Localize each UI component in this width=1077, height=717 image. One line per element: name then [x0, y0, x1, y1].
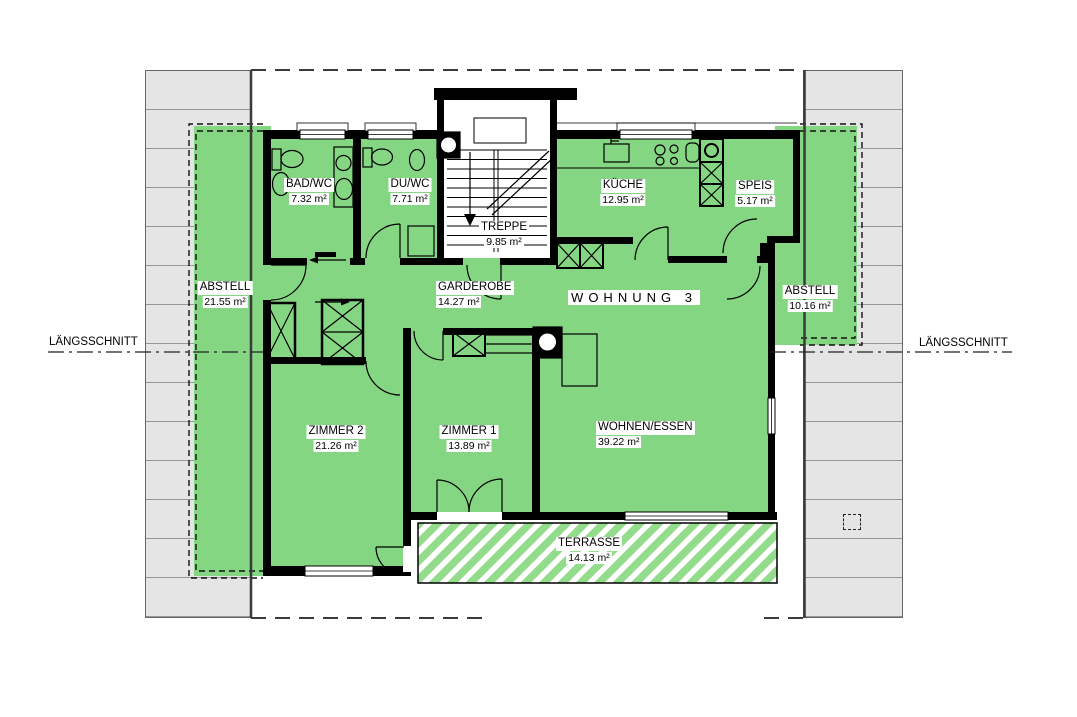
terrace-door-opening: [437, 512, 502, 520]
floorplan-page: BAD/WC7.32 m² DU/WC7.71 m² TREPPE9.85 m²…: [0, 0, 1077, 717]
room-label-kueche: KÜCHE12.95 m²: [600, 179, 645, 206]
room-label-zimmer-2: ZIMMER 221.26 m²: [307, 425, 366, 452]
room-label-du-wc: DU/WC7.71 m²: [389, 178, 432, 205]
area-abstell-left: [194, 126, 271, 576]
room-label-terrasse: TERRASSE14.13 m²: [556, 537, 622, 564]
room-label-garderobe: GARDEROBE14.27 m²: [436, 281, 514, 308]
room-label-wohnen-essen: WOHNEN/ESSEN39.22 m²: [596, 421, 695, 448]
area-main: [263, 245, 775, 520]
room-label-zimmer-1: ZIMMER 113.89 m²: [440, 425, 499, 452]
section-label-right: LÄNGSSCHNITT: [919, 337, 1008, 349]
room-label-abstell-left: ABSTELL21.55 m²: [198, 281, 253, 308]
room-label-speis: SPEIS5.17 m²: [735, 180, 775, 207]
room-label-bad-wc: BAD/WC7.32 m²: [284, 178, 334, 205]
zimmer2-door-opening: [403, 546, 411, 572]
floorplan-drawing: [0, 0, 1077, 717]
room-label-abstell-right: ABSTELL10.16 m²: [783, 285, 838, 312]
stair-landing: [474, 118, 526, 143]
vent-shaft-icon: [437, 132, 460, 158]
room-label-treppe: TREPPE9.85 m²: [479, 221, 529, 248]
apartment-label: WOHNUNG 3: [568, 290, 700, 305]
section-label-left: LÄNGSSCHNITT: [49, 336, 138, 348]
washer-icon: [533, 327, 562, 358]
